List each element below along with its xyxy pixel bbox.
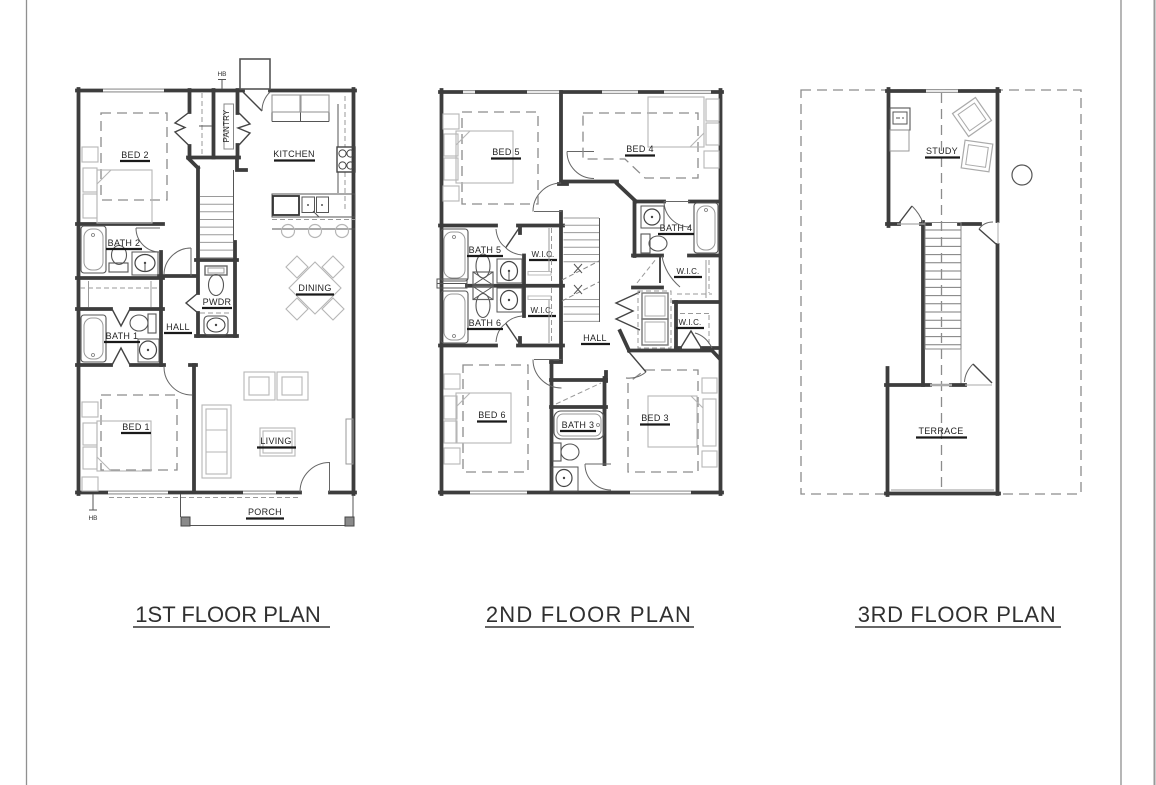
svg-text:DINING: DINING [298, 283, 331, 293]
svg-text:PORCH: PORCH [248, 507, 282, 517]
svg-text:W.I.C.: W.I.C. [677, 267, 700, 276]
svg-text:BED 1: BED 1 [122, 422, 150, 432]
svg-text:BATH 3: BATH 3 [562, 420, 595, 430]
svg-text:HALL: HALL [166, 322, 190, 332]
svg-text:2ND FLOOR PLAN: 2ND FLOOR PLAN [486, 602, 692, 627]
svg-text:1ST FLOOR PLAN: 1ST FLOOR PLAN [135, 602, 320, 627]
svg-text:BATH 1: BATH 1 [106, 331, 139, 341]
svg-text:TERRACE: TERRACE [918, 426, 963, 436]
svg-text:W.I.C.: W.I.C. [679, 318, 702, 327]
svg-text:3RD FLOOR PLAN: 3RD FLOOR PLAN [858, 602, 1057, 627]
svg-text:HB: HB [217, 71, 226, 78]
svg-text:BATH 5: BATH 5 [469, 245, 502, 255]
svg-text:LIVING: LIVING [260, 436, 291, 446]
svg-text:BATH 2: BATH 2 [108, 238, 141, 248]
svg-text:HB: HB [88, 515, 97, 522]
svg-text:PANTRY: PANTRY [222, 109, 231, 142]
svg-text:BED 4: BED 4 [626, 144, 654, 154]
svg-text:BED 6: BED 6 [478, 410, 506, 420]
svg-text:BATH 6: BATH 6 [469, 318, 502, 328]
svg-text:PWDR: PWDR [203, 297, 232, 307]
svg-text:BATH 4: BATH 4 [660, 223, 693, 233]
svg-text:HALL: HALL [583, 333, 607, 343]
svg-text:KITCHEN: KITCHEN [273, 149, 315, 159]
svg-text:BED 3: BED 3 [641, 413, 669, 423]
svg-text:BED 2: BED 2 [121, 150, 149, 160]
svg-text:STUDY: STUDY [926, 146, 958, 156]
svg-text:W.I.C.: W.I.C. [531, 306, 554, 315]
svg-text:BED 5: BED 5 [492, 147, 520, 157]
